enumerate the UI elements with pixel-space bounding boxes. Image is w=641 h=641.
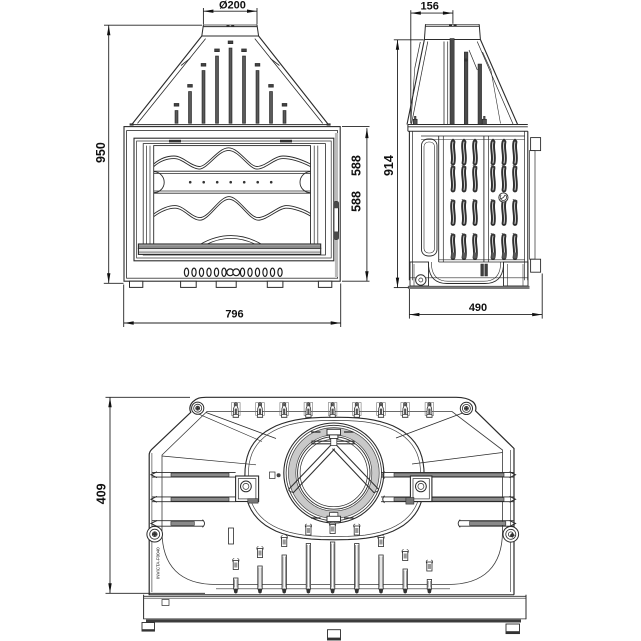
svg-text:409: 409 bbox=[94, 483, 108, 504]
svg-text:950: 950 bbox=[94, 142, 108, 163]
svg-text:490: 490 bbox=[469, 302, 487, 314]
svg-text:Ø200: Ø200 bbox=[219, 0, 246, 12]
svg-text:588: 588 bbox=[349, 155, 363, 176]
svg-text:914: 914 bbox=[382, 155, 396, 176]
svg-text:156: 156 bbox=[421, 0, 439, 12]
svg-text:796: 796 bbox=[225, 309, 243, 321]
svg-text:INVICTA-F0040: INVICTA-F0040 bbox=[156, 547, 161, 579]
svg-text:588: 588 bbox=[349, 191, 363, 212]
